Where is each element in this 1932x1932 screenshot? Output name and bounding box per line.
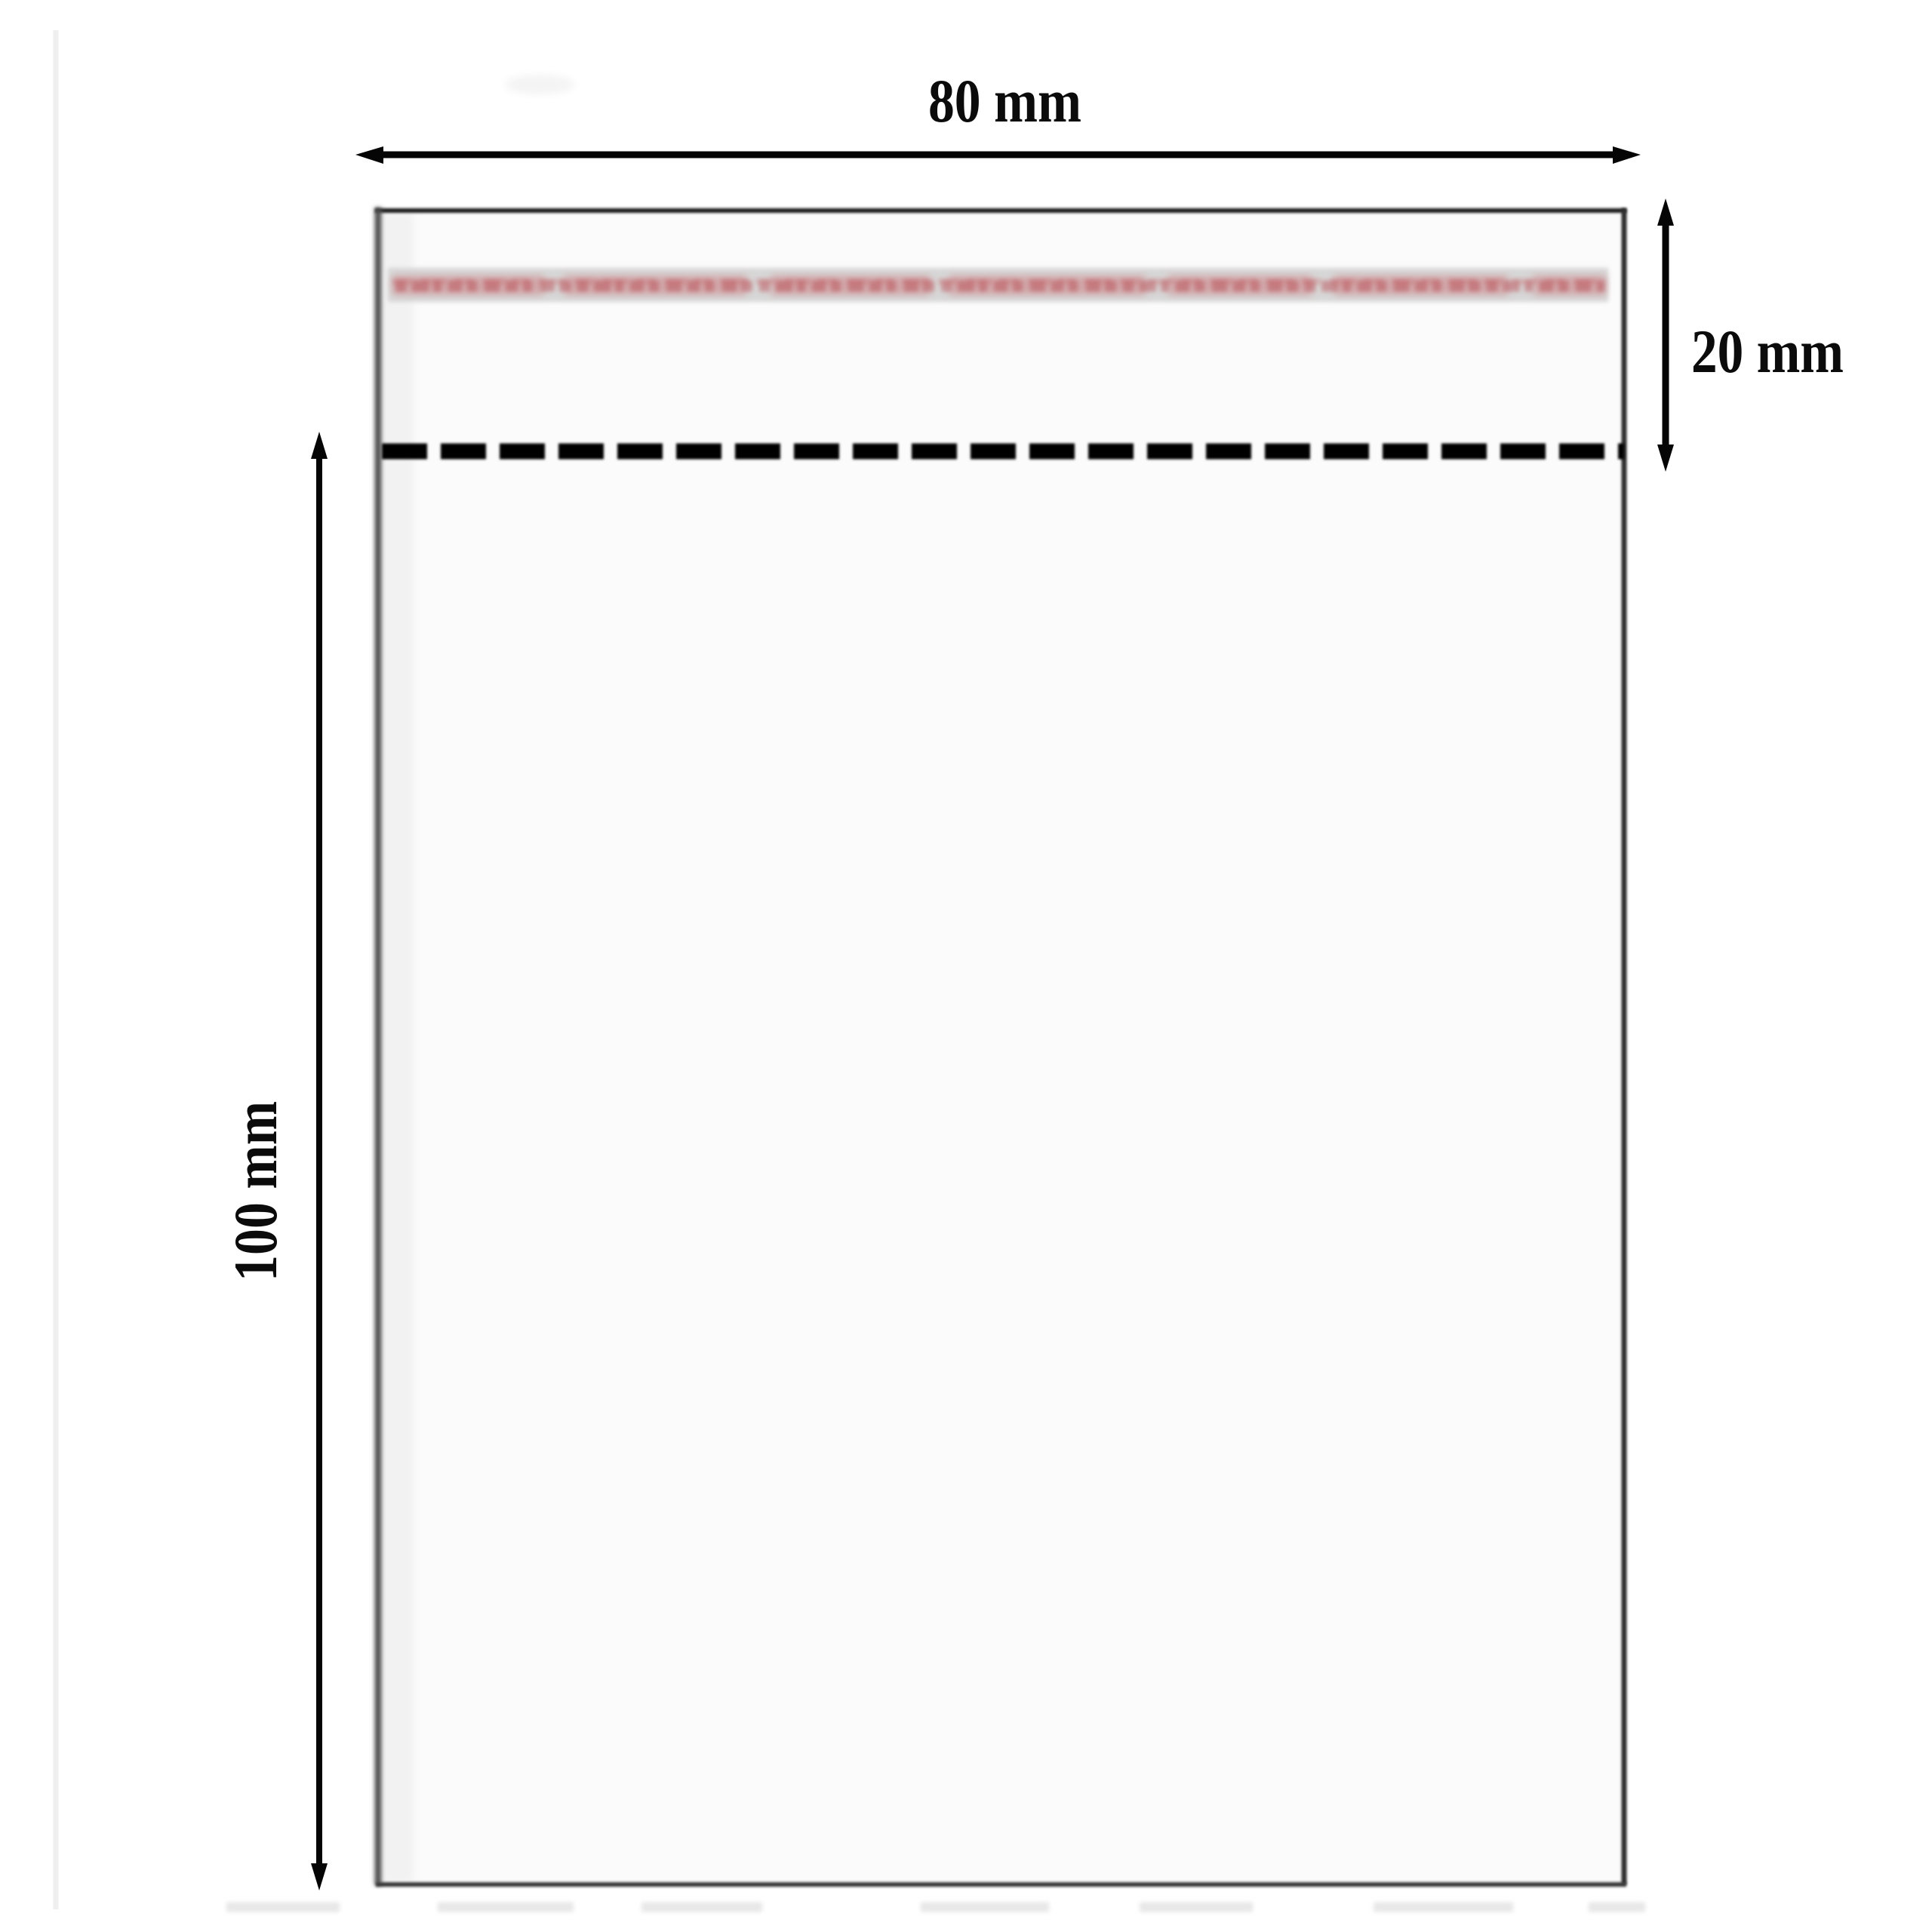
svg-text:100 mm: 100 mm xyxy=(221,1101,290,1281)
svg-text:20 mm: 20 mm xyxy=(1691,317,1844,386)
svg-text:80 mm: 80 mm xyxy=(928,66,1081,135)
